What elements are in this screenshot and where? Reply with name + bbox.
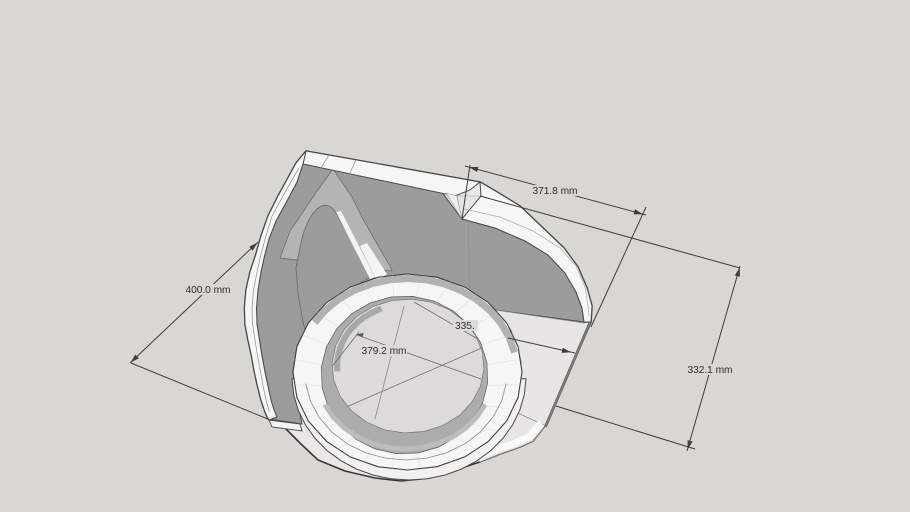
svg-text:400.0 mm: 400.0 mm (186, 285, 231, 296)
svg-text:379.2 mm: 379.2 mm (362, 346, 407, 357)
svg-text:332.1 mm: 332.1 mm (688, 365, 733, 376)
svg-text:335.: 335. (455, 321, 475, 332)
svg-text:371.8 mm: 371.8 mm (533, 186, 578, 197)
